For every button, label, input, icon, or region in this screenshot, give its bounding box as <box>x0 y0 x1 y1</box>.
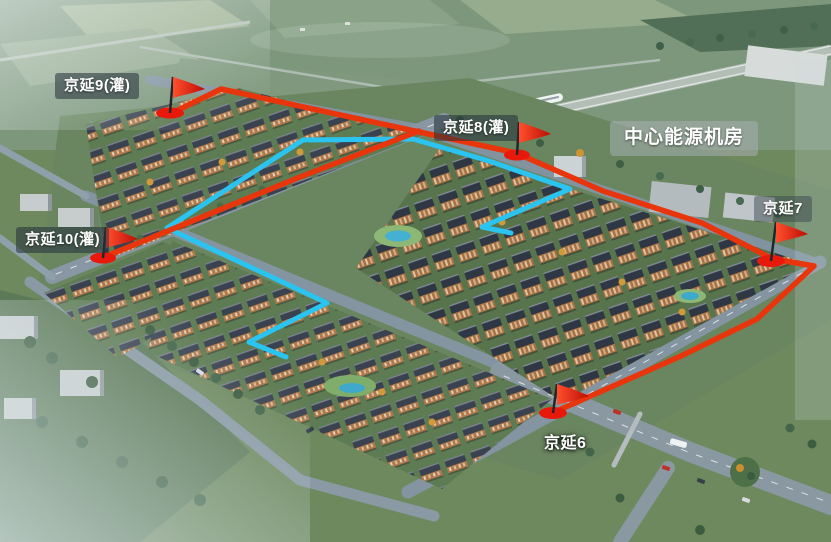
label-jingyan8: 京延8(灌) <box>434 115 518 141</box>
roundabout-island <box>730 457 760 487</box>
label-jingyan7: 京延7 <box>754 196 812 222</box>
label-energy-center: 中心能源机房 <box>610 121 758 156</box>
haze-right <box>795 60 831 420</box>
central-park <box>374 225 422 247</box>
aerial-site-plan: 京延9(灌) 京延8(灌) 京延7 京延10(灌) 京延6 中心能源机房 con… <box>0 0 831 542</box>
label-jingyan9: 京延9(灌) <box>55 73 139 99</box>
haze-top-left <box>0 0 270 130</box>
cloud-wisp <box>250 22 510 58</box>
label-jingyan10: 京延10(灌) <box>16 227 109 253</box>
label-jingyan6: 京延6 <box>544 434 586 455</box>
